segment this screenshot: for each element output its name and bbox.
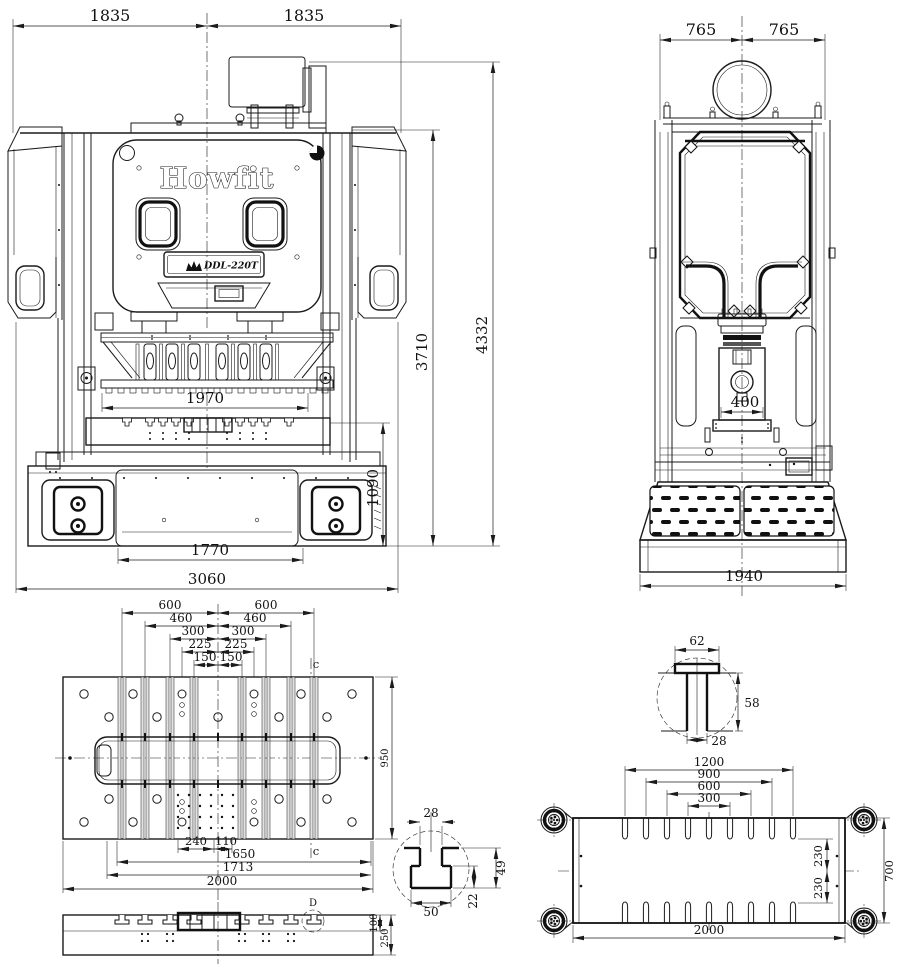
side-base [640, 482, 846, 572]
guide-bushing-top-right [844, 803, 881, 837]
dim-front-base-inner-width: 1770 [191, 541, 229, 559]
dim-hole-span-110: 110 [215, 834, 237, 848]
tslot-detail-view: 28 50 49 22 [393, 806, 508, 919]
side-crown-panel [680, 132, 810, 318]
dim-tslot-flange-depth: 22 [466, 893, 480, 908]
dim-tenon-stem-width: 28 [711, 734, 726, 748]
base-front [28, 452, 386, 546]
dim-span-1713: 1713 [223, 860, 254, 874]
side-top-dims: 765 765 [660, 20, 825, 120]
guide-bushing-top-left [537, 803, 574, 837]
side-strip-right [796, 326, 816, 426]
panel-cutout-right [760, 266, 798, 318]
dim-front-half-width-right: 1835 [284, 6, 325, 25]
tenon-detail-view: 62 58 28 [657, 634, 760, 748]
side-lower-frame [655, 446, 832, 475]
bolster-front [86, 418, 330, 445]
dim-offset-230-bottom: 230 [811, 877, 825, 899]
brand-logo-text: Howfit [160, 161, 275, 195]
side-top-bracket [663, 102, 822, 132]
slide-width-dim: 2000 [573, 923, 845, 943]
left-foot [42, 480, 114, 540]
dim-bolster-width: 2000 [207, 874, 238, 888]
dim-slot-600-left: 600 [159, 598, 182, 612]
dim-1970: 1970 [102, 389, 308, 412]
dim-side-half-depth-left: 765 [686, 20, 717, 39]
dim-slot-150-left: 150 [194, 650, 217, 664]
dim-tslot-bottom-width: 50 [423, 905, 438, 919]
guide-bushing-bottom-left [537, 904, 574, 938]
dim-tenon-top-width: 62 [689, 634, 704, 648]
dim-slot-span-300: 300 [698, 791, 721, 805]
crown-vent [158, 283, 270, 308]
slide-top-dims: 1200 900 600 300 [625, 755, 793, 816]
dim-400: 400 [721, 393, 763, 418]
tslot-profile [404, 848, 459, 888]
guide-bushing-bottom-right [844, 904, 881, 938]
dim-front-window-width: 1970 [186, 389, 224, 407]
dim-front-half-width-left: 1835 [90, 6, 131, 25]
base-recess [116, 470, 298, 546]
bolster-plan-view: 600 600 460 460 300 300 225 225 150 150 … [55, 598, 398, 900]
left-window [136, 198, 180, 250]
dim-front-bed-height: 1090 [364, 469, 382, 507]
dim-bolster-depth: 950 [380, 748, 391, 767]
step-plate-left [650, 486, 740, 536]
dim-1940: 1940 [640, 567, 846, 591]
drawing-canvas: 1835 1835 [0, 0, 900, 968]
nameplate: DDL-220T [164, 252, 264, 277]
dim-slide-depth: 700 [882, 860, 896, 882]
dim-slot-460-left: 460 [170, 611, 193, 625]
dim-side-base-depth: 1940 [725, 567, 763, 585]
dim-front-overall-height: 4332 [473, 316, 491, 354]
press-outline-drawing: 1835 1835 [0, 0, 900, 968]
dim-side-half-depth-right: 765 [769, 20, 800, 39]
crown-face: Howfit DDL-220T [113, 140, 325, 312]
howfit-logo-icon [186, 261, 202, 271]
bolster-section-view: D 100 250 [63, 898, 396, 964]
dim-hole-span-240: 240 [185, 834, 207, 848]
dim-slot-600-right: 600 [255, 598, 278, 612]
bolster-center-opening [95, 733, 340, 788]
gib-fingers [136, 344, 279, 380]
dim-total-thickness: 250 [380, 928, 391, 947]
side-view: 765 765 [640, 16, 846, 596]
bolster-bottom-dims: 240 110 1650 1713 2000 [63, 834, 373, 893]
dim-side-slide-width: 400 [731, 393, 760, 411]
dim-tenon-height: 58 [744, 696, 759, 710]
tslot-dims-bottom: 50 49 22 [411, 848, 508, 919]
dim-slot-225-left: 225 [189, 637, 212, 651]
dim-tslot-depth: 49 [494, 860, 508, 875]
side-strip-left [676, 326, 696, 426]
model-label: DDL-220T [203, 261, 259, 272]
dim-upper-thickness: 100 [369, 913, 380, 932]
crown-top-plate [131, 123, 326, 133]
dim-slot-300-left: 300 [182, 624, 205, 638]
detail-mark-d: D [309, 898, 317, 909]
step-plate-right [744, 486, 834, 536]
section-mark-c-top: c [313, 657, 319, 671]
dim-front-overall-width: 3060 [188, 570, 226, 588]
bolster-front-dots [149, 432, 267, 440]
section-mark-c-bottom: c [313, 844, 319, 858]
front-view: 1835 1835 [8, 6, 500, 593]
slide-plate [573, 818, 845, 923]
dim-slot-300-right: 300 [232, 624, 255, 638]
slide-area [95, 312, 339, 393]
dim-slide-width: 2000 [694, 923, 725, 937]
dim-tslot-width: 28 [423, 806, 438, 820]
dim-slot-225-right: 225 [225, 637, 248, 651]
dim-slot-150-right: 150 [220, 650, 243, 664]
dim-slot-460-right: 460 [244, 611, 267, 625]
dim-span-1650: 1650 [225, 847, 256, 861]
dim-offset-230-top: 230 [811, 845, 825, 867]
dim-front-frame-height: 3710 [413, 333, 431, 371]
right-window [243, 198, 287, 250]
slide-depth-dim: 700 [847, 818, 896, 923]
slide-plan-view: 1200 900 600 300 [537, 755, 896, 943]
